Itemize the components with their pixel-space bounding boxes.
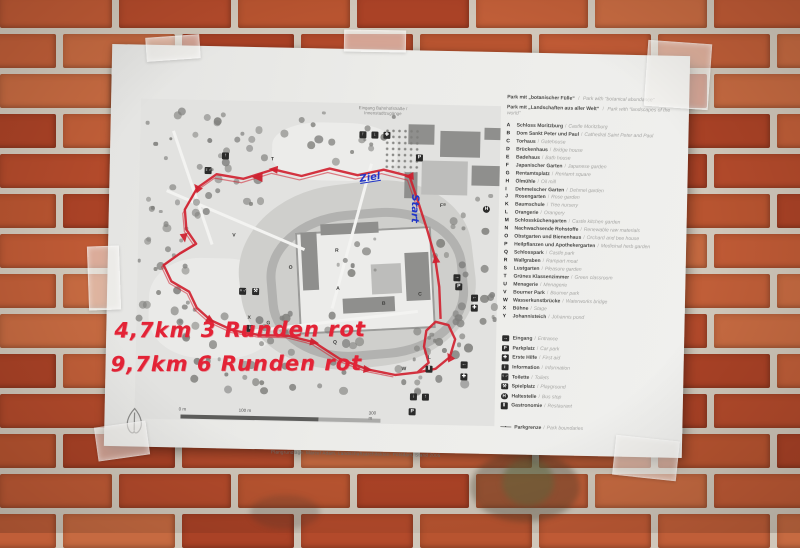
legend-symbol-en: Car park [540,346,559,352]
legend-item-name-de: Schlosspark [514,249,544,256]
brick [714,0,800,28]
brick [658,514,770,548]
separator: / [578,96,580,102]
legend-item-name-de: Wallgraben [514,257,541,264]
legend-item-name-de: Dom Sankt Peter und Paul [516,130,579,137]
legend-symbol-en: Bus stop [542,394,562,400]
toilets-icon: ♀♂ [205,167,212,174]
separator: / [543,425,545,431]
legend-item-name-de: Lustgarten [514,265,540,272]
legend-symbol-de: Parkplatz [512,345,534,351]
brick [476,0,588,28]
legend-symbol-de: Gastronomie [511,403,542,410]
bus-stop-icon: H [501,393,508,400]
legend-symbol-de: Parkgrenze [514,424,541,431]
brick [777,274,800,308]
brick [301,514,413,548]
brick [714,154,800,188]
legend-item-name-en: Waterworks bridge [566,298,608,305]
brick [357,474,469,508]
legend-item-name-de: Johannisteich [513,313,547,320]
legend-item-key: A [507,122,517,128]
brick [0,314,112,348]
legend-item-name-de: Badehaus [516,154,540,160]
legend-item-name-en: Bourner park [550,290,579,297]
legend-symbol-de: Spielplatz [512,384,535,390]
separator: / [537,384,539,390]
legend-item-name-de: Bourner Park [513,289,545,296]
separator: / [531,374,533,380]
legend-item-key: J [505,194,515,200]
brick [777,434,800,468]
brick [357,0,469,28]
legend-item-key: W [503,297,513,303]
restaurant-icon: Ⅱ [425,366,432,373]
arrow-up-icon: ↑ [422,394,429,401]
legend-item-name-en: Castle kitchen garden [572,219,620,226]
legend-symbol-item: —·—Parkgrenze/Park boundaries [500,422,672,435]
scale-label-0: 0 m [179,406,187,411]
legend-item-key: P [504,241,514,247]
legend-item-name-en: Renewable raw materials [584,227,640,234]
legend-symbol-en: Playground [540,384,565,391]
brick [714,234,800,268]
legend-item-name-de: Orangerie [515,210,539,216]
separator: / [539,355,541,361]
separator: / [581,132,583,138]
legend-item-name-en: Bath house [545,155,570,162]
park-boundary-icon: —·— [500,424,510,431]
map-letter-marker: A [336,287,340,292]
legend-item-key: T [503,273,513,279]
separator: / [565,123,567,129]
brick [0,34,56,68]
map-letter-marker: L [428,356,431,361]
brick [714,394,800,428]
legend-item-name-en: Rampart moat [546,258,578,265]
legend-letter-list: ASchloss Moritzburg/Castle MoritzburgBDo… [503,122,679,324]
brick [0,514,56,548]
scale-label-300: 300 m [368,410,380,420]
separator: / [530,305,532,311]
arrow-left-icon: ← [471,295,478,302]
legend-item-name-de: Torhaus [516,138,535,144]
legend-item-name-en: Rentamt square [555,171,591,178]
separator: / [543,258,545,264]
legend-symbol-de: Haltestelle [511,393,536,400]
legend-item-name-de: Dehmelscher Garten [515,186,564,193]
legend-item-name-en: Bridge house [553,147,583,154]
tape-strip [644,40,712,110]
restaurant-icon: Ⅱ [501,402,508,409]
brick [0,354,56,388]
legend-symbol-en: Restaurant [547,404,572,411]
separator: / [541,266,543,272]
map-letter-marker: F [440,204,443,209]
legend-header-1-de: Park mit „botanischer Fülle“ [507,94,575,101]
brick [714,474,800,508]
toilets-icon: ♀♂ [501,374,508,381]
separator: / [548,314,550,320]
map-letter-marker: C [418,292,422,297]
legend-item-name-de: Bühne [513,305,529,311]
map-letter-marker: W [401,367,406,372]
legend-item-key: O [504,233,514,239]
legend-item-key: C [506,138,516,144]
legend-item-name-de: Obstgarten und Bienenhaus [514,234,581,241]
legend-item-name-en: Orchard and bee house [587,235,640,242]
map-letter-marker: Q [333,341,337,346]
legend-symbol-list: →Eingang/EntrancePParkplatz/Car park✚Ers… [501,334,675,414]
brick [0,274,56,308]
tape-strip [94,421,150,462]
brick [539,514,651,548]
legend: Park mit „botanischer Fülle“ / Park with… [500,94,679,454]
separator: / [564,163,566,169]
legend-item-key: X [503,305,513,311]
legend-symbol-en: First aid [542,355,560,361]
arrow-up-icon: ↑ [222,152,229,159]
separator: / [562,298,564,304]
legend-symbol-en: Information [545,365,570,372]
arrow-down-icon: ↓ [410,393,417,400]
information-icon: i [502,364,509,371]
legend-item-key: M [505,217,515,223]
parking-icon: P [502,345,509,352]
legend-item-key: R [504,257,514,263]
legend-item-name-de: Brückenhaus [516,146,548,153]
separator: / [542,365,544,371]
legend-item-name-de: Schlossküchengarten [515,218,567,225]
handwritten-distance-line1: 4,7km 3 Runden rot [114,317,366,342]
wall-stain [502,458,554,506]
brick [119,0,231,28]
separator: / [540,282,542,288]
tape-strip [612,435,680,481]
legend-item-name-en: Gatehouse [541,139,566,146]
legend-item-key: Y [503,313,513,319]
brick [63,514,175,548]
legend-item-name-de: Heilpflanzen und Apothekergarten [514,242,595,250]
separator: / [569,219,571,225]
brick [714,74,800,108]
legend-symbol-de: Information [512,364,540,371]
arrow-up-icon: ↑ [359,131,366,138]
legend-item-name-en: Cathedral Saint Peter and Paul [584,132,653,139]
first-aid-icon: ✚ [460,373,467,380]
legend-item-key: K [505,202,515,208]
brick [0,394,112,428]
legend-item-name-en: Green classroom [574,275,612,282]
map-letter-marker: R [335,249,339,254]
legend-item-name-de: Menagerie [513,281,538,288]
handwritten-distance-line2: 9,7km 6 Runden rot [111,351,363,376]
separator: / [542,155,544,161]
legend-item-key: G [506,170,516,176]
legend-item-name-en: Castle park [549,250,574,257]
legend-item-name-en: Johannis pond [552,314,585,321]
legend-symbol-en: Entrance [538,336,558,342]
separator: / [571,274,573,280]
legend-symbol-en: Park boundaries [547,425,584,432]
brick [777,514,800,548]
separator: / [547,290,549,296]
legend-item-name-de: Japanischer Garten [516,162,563,169]
separator: / [597,243,599,249]
legend-item-name-en: Pleasure garden [545,266,582,273]
scale-label-100: 100 m [239,408,252,413]
toilets-icon: ♀♂ [239,288,246,295]
brick [0,154,112,188]
separator: / [546,250,548,256]
brick [777,194,800,228]
legend-item-name-en: Dehmel garden [570,187,604,194]
legend-item-name-de: Grünes Klassenzimmer [513,273,569,280]
legend-item-key: B [506,130,516,136]
brick [714,314,800,348]
legend-item-name-de: Schloss Moritzburg [517,122,564,129]
legend-item-key: Q [504,249,514,255]
legend-item-key: U [503,281,513,287]
separator: / [538,394,540,400]
tape-strip [87,245,121,310]
first-aid-icon: ✚ [383,132,390,139]
map-letter-marker: B [382,302,386,307]
legend-symbol-en: Toilets [535,375,549,381]
brick [119,474,231,508]
legend-symbol-de: Erste Hilfe [512,355,537,362]
start-handwritten-label: Start [409,194,421,223]
legend-symbol-de: Toilette [512,374,530,380]
legend-item-key: S [504,265,514,271]
first-aid-icon: ✚ [471,305,478,312]
separator: / [538,139,540,145]
legend-item-name-en: Oil mill [541,179,556,185]
map-letter-marker: T [271,157,274,162]
legend-item-name-de: Rosengarten [515,194,546,201]
playground-icon: ⚒ [252,288,259,295]
map-letter-marker: O [289,266,293,271]
legend-item-name-de: Rentamtsplatz [516,170,550,177]
wall-stain [250,495,320,529]
separator: / [544,404,546,410]
legend-item-key: D [506,146,516,152]
legend-item-name-en: Rose garden [551,195,580,202]
separator: / [580,227,582,233]
legend-item-name-en: Medicinal herb garden [601,243,651,250]
legend-item-key: F [506,162,516,168]
brick [0,0,112,28]
legend-header-2: Park mit „Landschaften aus aller Welt“ /… [507,104,679,120]
legend-item-name-en: Castle Moritzburg [568,124,607,131]
brick [595,0,707,28]
map-letter-marker: V [232,234,235,239]
parking-icon: P [455,283,462,290]
tape-strip [145,34,201,62]
brick [0,114,56,148]
legend-item-name-en: Stage [534,305,547,311]
legend-item-key: N [504,225,514,231]
separator: / [537,178,539,184]
separator: / [540,210,542,216]
entrance-arrow-icon: → [502,335,509,342]
arrow-right-icon: → [453,274,460,281]
separator: / [548,195,550,201]
legend-item-key: E [506,154,516,160]
legend-symbol-de: Eingang [513,336,533,342]
separator: / [534,336,536,342]
separator: / [603,106,605,112]
legend-item-key: H [505,178,515,184]
separator: / [552,171,554,177]
parking-icon: P [416,154,423,161]
legend-item-name-de: Baumschule [515,202,545,209]
legend-item-name-en: Menagerie [543,282,567,288]
parking-icon: P [409,408,416,415]
brick [0,74,112,108]
separator: / [547,203,549,209]
legend-item-name-en: Orangery [544,210,565,216]
first-aid-icon: ✚ [502,354,509,361]
brick [0,434,56,468]
tape-strip [344,29,406,52]
legend-item-key: V [503,289,513,295]
arrow-left-icon: ← [461,361,468,368]
arrow-down-icon: ↓ [371,131,378,138]
legend-item-name-de: Ölmühle [515,178,535,184]
brick [777,354,800,388]
brick [0,194,56,228]
legend-item-name-en: Japanese garden [568,163,607,170]
park-map-poster: TVORABCQPXGFLW ↑♀♂PPHi→←✚←✚↓↑P♀♂⚒↑↓✚Ⅱ Zi… [104,44,690,458]
separator: / [537,346,539,352]
legend-item-key: L [505,210,515,216]
separator: / [583,235,585,241]
legend-item-name-de: Nachwachsende Rohstoffe [514,226,578,233]
playground-icon: ⚒ [501,383,508,390]
separator: / [550,147,552,153]
legend-item-name-de: Wasserkunstbrücke [513,297,560,304]
brick [595,474,707,508]
separator: / [566,187,568,193]
legend-item-key: I [505,186,515,192]
brick [0,474,112,508]
legend-item-name-en: Tree nursery [550,203,578,210]
brick [777,34,800,68]
legend-boundary-row: —·—Parkgrenze/Park boundaries [500,422,672,435]
brick [777,114,800,148]
brick [238,0,350,28]
